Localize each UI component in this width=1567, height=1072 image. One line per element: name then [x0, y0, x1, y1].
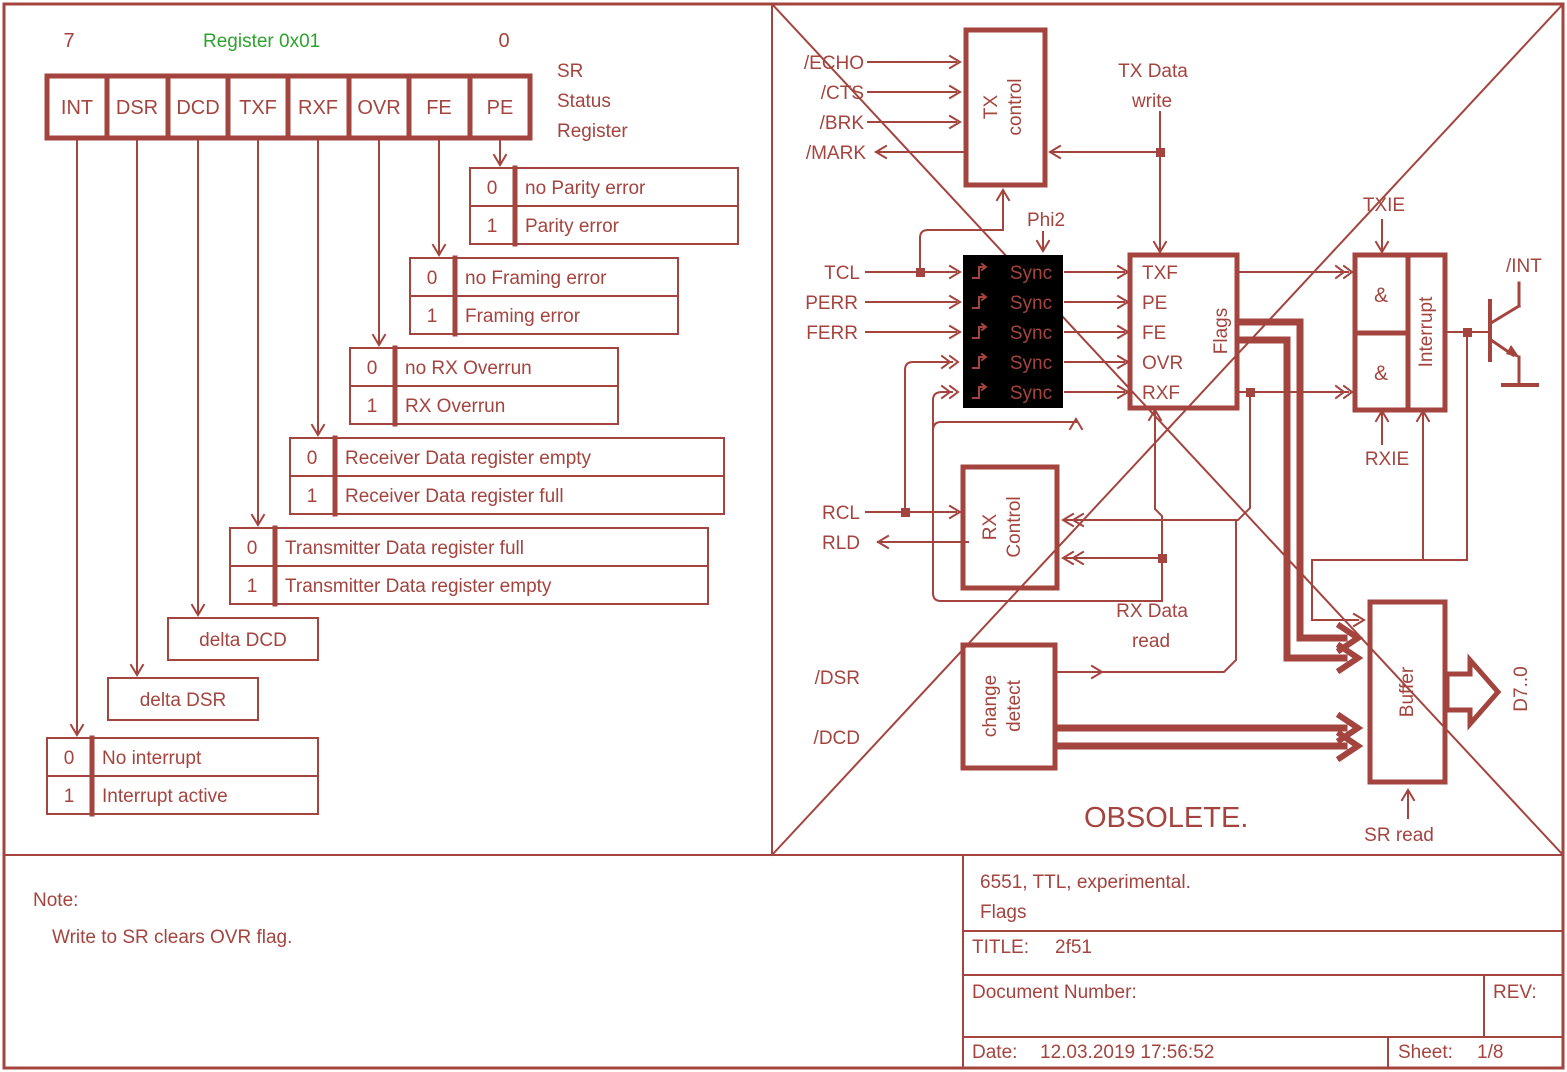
label-rx-data: RX Data — [1116, 601, 1188, 622]
sync-label-2: Sync — [1010, 293, 1052, 314]
label-brk: /BRK — [820, 113, 865, 134]
sync-label-1: Sync — [1010, 263, 1052, 284]
label-rld: RLD — [822, 533, 860, 554]
rxf-0-desc: Receiver Data register empty — [345, 448, 592, 469]
bit-dcd: DCD — [176, 97, 219, 119]
tx-control-block: TX control — [966, 30, 1045, 185]
tb-description-1: 6551, TTL, experimental. — [980, 872, 1191, 893]
bit-fe: FE — [426, 97, 452, 119]
label-rcl: RCL — [822, 503, 860, 524]
bit-int: INT — [61, 97, 93, 119]
tb-rev-label: REV: — [1493, 982, 1537, 1003]
schematic-canvas: 7 Register 0x01 0 INT DSR DCD TXF RXF OV… — [0, 0, 1567, 1072]
flags-row-fe: FE — [1142, 323, 1166, 344]
note-title: Note: — [33, 890, 78, 911]
sync-label-3: Sync — [1010, 323, 1052, 344]
label-sr-read: SR read — [1364, 825, 1434, 846]
int-1-bit: 1 — [64, 786, 75, 807]
int-0-bit: 0 — [64, 748, 75, 769]
data-bus-arrow — [1447, 660, 1498, 724]
bit-pe: PE — [487, 97, 514, 119]
label-tx-data: TX Data — [1118, 61, 1188, 82]
ovr-0-desc: no RX Overrun — [405, 358, 532, 379]
pe-0-desc: no Parity error — [525, 178, 646, 199]
rx-control-label-2: Control — [1004, 496, 1025, 557]
delta-dsr-label: delta DSR — [140, 690, 227, 711]
label-rx-data-read: read — [1132, 631, 1170, 652]
rx-control-label-1: RX — [980, 513, 1001, 540]
sync-block: Sync Sync Sync Sync Sync — [963, 255, 1063, 408]
bit-ovr: OVR — [357, 97, 400, 119]
bit-index-7: 7 — [63, 30, 74, 52]
frame — [4, 4, 1563, 1068]
tb-title-value: 2f51 — [1055, 937, 1092, 958]
interrupt-title: Interrupt — [1416, 296, 1437, 367]
tb-doc-label: Document Number: — [972, 982, 1137, 1003]
bit-dsr: DSR — [116, 97, 158, 119]
label-tx-data-write: write — [1131, 91, 1172, 112]
tb-sheet-value: 1/8 — [1477, 1042, 1503, 1063]
txf-0-desc: Transmitter Data register full — [285, 538, 524, 559]
bit-index-0: 0 — [498, 30, 509, 52]
note-body: Write to SR clears OVR flag. — [52, 927, 292, 948]
pe-1-desc: Parity error — [525, 216, 620, 237]
label-perr: PERR — [805, 293, 858, 314]
flags-block: TXF PE FE OVR RXF Flags — [1130, 255, 1237, 408]
register-name-line1: SR — [557, 61, 583, 82]
bit-table-ovr: 0 no RX Overrun 1 RX Overrun — [350, 348, 618, 424]
rxf-1-desc: Receiver Data register full — [345, 486, 564, 507]
block-diagram: TX control Sync Sync Sync Sync Sync — [804, 30, 1542, 846]
label-echo: /ECHO — [804, 53, 864, 74]
schematic-page: 7 Register 0x01 0 INT DSR DCD TXF RXF OV… — [0, 0, 1567, 1072]
label-ferr: FERR — [806, 323, 858, 344]
register-name-line3: Register — [557, 121, 628, 142]
sync-label-5: Sync — [1010, 383, 1052, 404]
flags-row-rxf: RXF — [1142, 383, 1180, 404]
register-box: INT DSR DCD TXF RXF OVR FE PE — [47, 76, 530, 138]
label-txie: TXIE — [1363, 195, 1405, 216]
label-phi2: Phi2 — [1027, 210, 1065, 231]
rx-control-block: RX Control — [963, 467, 1057, 588]
tb-title-label: TITLE: — [972, 937, 1029, 958]
buffer-block: Buffer — [1370, 602, 1445, 782]
delta-dcd-box: delta DCD — [168, 618, 318, 660]
label-int: /INT — [1506, 256, 1542, 277]
label-tcl: TCL — [824, 263, 860, 284]
bit-stems — [71, 138, 506, 735]
pe-1-bit: 1 — [487, 216, 498, 237]
label-dsr: /DSR — [815, 668, 860, 689]
txf-0-bit: 0 — [247, 538, 258, 559]
bit-table-int: 0 No interrupt 1 Interrupt active — [47, 738, 318, 814]
delta-dsr-box: delta DSR — [108, 678, 258, 720]
int-1-desc: Interrupt active — [102, 786, 228, 807]
bit-table-fe: 0 no Framing error 1 Framing error — [410, 258, 678, 334]
bit-table-pe: 0 no Parity error 1 Parity error — [470, 168, 738, 244]
label-cts: /CTS — [821, 83, 864, 104]
tb-description-2: Flags — [980, 902, 1026, 923]
label-mark: /MARK — [806, 143, 867, 164]
title-block: 6551, TTL, experimental. Flags TITLE: 2f… — [963, 855, 1563, 1068]
register-title: Register 0x01 — [203, 31, 320, 52]
sync-label-4: Sync — [1010, 353, 1052, 374]
fe-0-desc: no Framing error — [465, 268, 607, 289]
label-dcd: /DCD — [814, 728, 860, 749]
register-map: 7 Register 0x01 0 INT DSR DCD TXF RXF OV… — [47, 30, 738, 814]
int-0-desc: No interrupt — [102, 748, 202, 769]
wires — [866, 56, 1472, 818]
pe-0-bit: 0 — [487, 178, 498, 199]
tb-sheet-label: Sheet: — [1398, 1042, 1453, 1063]
tb-date-label: Date: — [972, 1042, 1017, 1063]
flags-row-ovr: OVR — [1142, 353, 1183, 374]
ovr-0-bit: 0 — [367, 358, 378, 379]
bit-rxf: RXF — [298, 97, 338, 119]
change-detect-label-2: detect — [1004, 679, 1025, 731]
bit-txf: TXF — [239, 97, 277, 119]
ovr-1-bit: 1 — [367, 396, 378, 417]
obsolete-watermark: OBSOLETE. — [1084, 802, 1248, 834]
buffer-title: Buffer — [1397, 666, 1418, 717]
tx-control-label-2: control — [1005, 78, 1026, 135]
flags-row-txf: TXF — [1142, 263, 1178, 284]
fe-1-bit: 1 — [427, 306, 438, 327]
fe-0-bit: 0 — [427, 268, 438, 289]
rxf-1-bit: 1 — [307, 486, 318, 507]
tx-control-label-1: TX — [981, 95, 1002, 120]
register-name-line2: Status — [557, 91, 611, 112]
txf-1-desc: Transmitter Data register empty — [285, 576, 552, 597]
txf-1-bit: 1 — [247, 576, 258, 597]
label-d-bus: D7..0 — [1511, 666, 1532, 711]
flags-title: Flags — [1211, 308, 1232, 354]
npn-transistor-icon — [1447, 283, 1537, 385]
rxf-0-bit: 0 — [307, 448, 318, 469]
and-gate-bottom: & — [1374, 362, 1388, 385]
register-name: SR Status Register — [557, 61, 628, 142]
delta-dcd-label: delta DCD — [199, 630, 287, 651]
bit-table-rxf: 0 Receiver Data register empty 1 Receive… — [290, 438, 724, 514]
ovr-1-desc: RX Overrun — [405, 396, 505, 417]
change-detect-block: change detect — [963, 645, 1055, 768]
and-gate-top: & — [1374, 284, 1388, 307]
interrupt-block: & & Interrupt — [1355, 255, 1445, 410]
tb-date-value: 12.03.2019 17:56:52 — [1040, 1042, 1214, 1063]
bit-table-txf: 0 Transmitter Data register full 1 Trans… — [230, 528, 708, 604]
fe-1-desc: Framing error — [465, 306, 581, 327]
change-detect-label-1: change — [980, 675, 1001, 737]
label-rxie: RXIE — [1365, 449, 1409, 470]
note-area: Note: Write to SR clears OVR flag. — [33, 890, 292, 948]
flags-row-pe: PE — [1142, 293, 1167, 314]
